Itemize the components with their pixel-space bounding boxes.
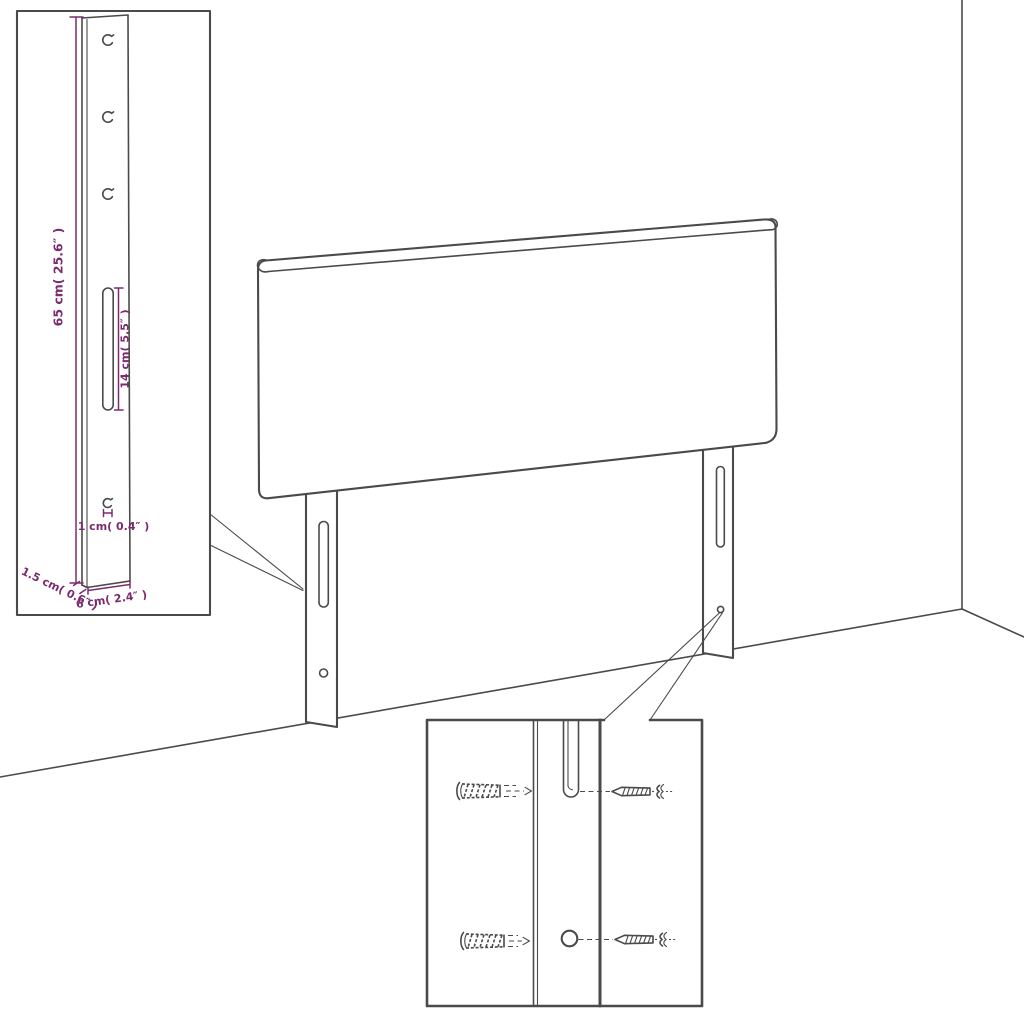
headboard-assembly-diagram: 65 cm( 25.6″ ) 14 cm( 5.5″ ) 1 cm( 0.4″ … [0,0,1024,1024]
dim-label-leg-height: 65 cm( 25.6″ ) [51,228,66,327]
detail-inset-leg: 65 cm( 25.6″ ) 14 cm( 5.5″ ) 1 cm( 0.4″ … [17,11,210,615]
headboard-right-leg [703,426,733,658]
detail-inset-mounting [427,720,702,1006]
inset-mounting-fill [427,720,702,1006]
dim-label-slot-length: 14 cm( 5.5″ ) [119,309,132,388]
dim-label-hole-diameter: 1 cm( 0.4″ ) [78,520,150,533]
product-diagram-page: 65 cm( 25.6″ ) 14 cm( 5.5″ ) 1 cm( 0.4″ … [0,0,1024,1024]
headboard-left-leg [306,466,337,727]
